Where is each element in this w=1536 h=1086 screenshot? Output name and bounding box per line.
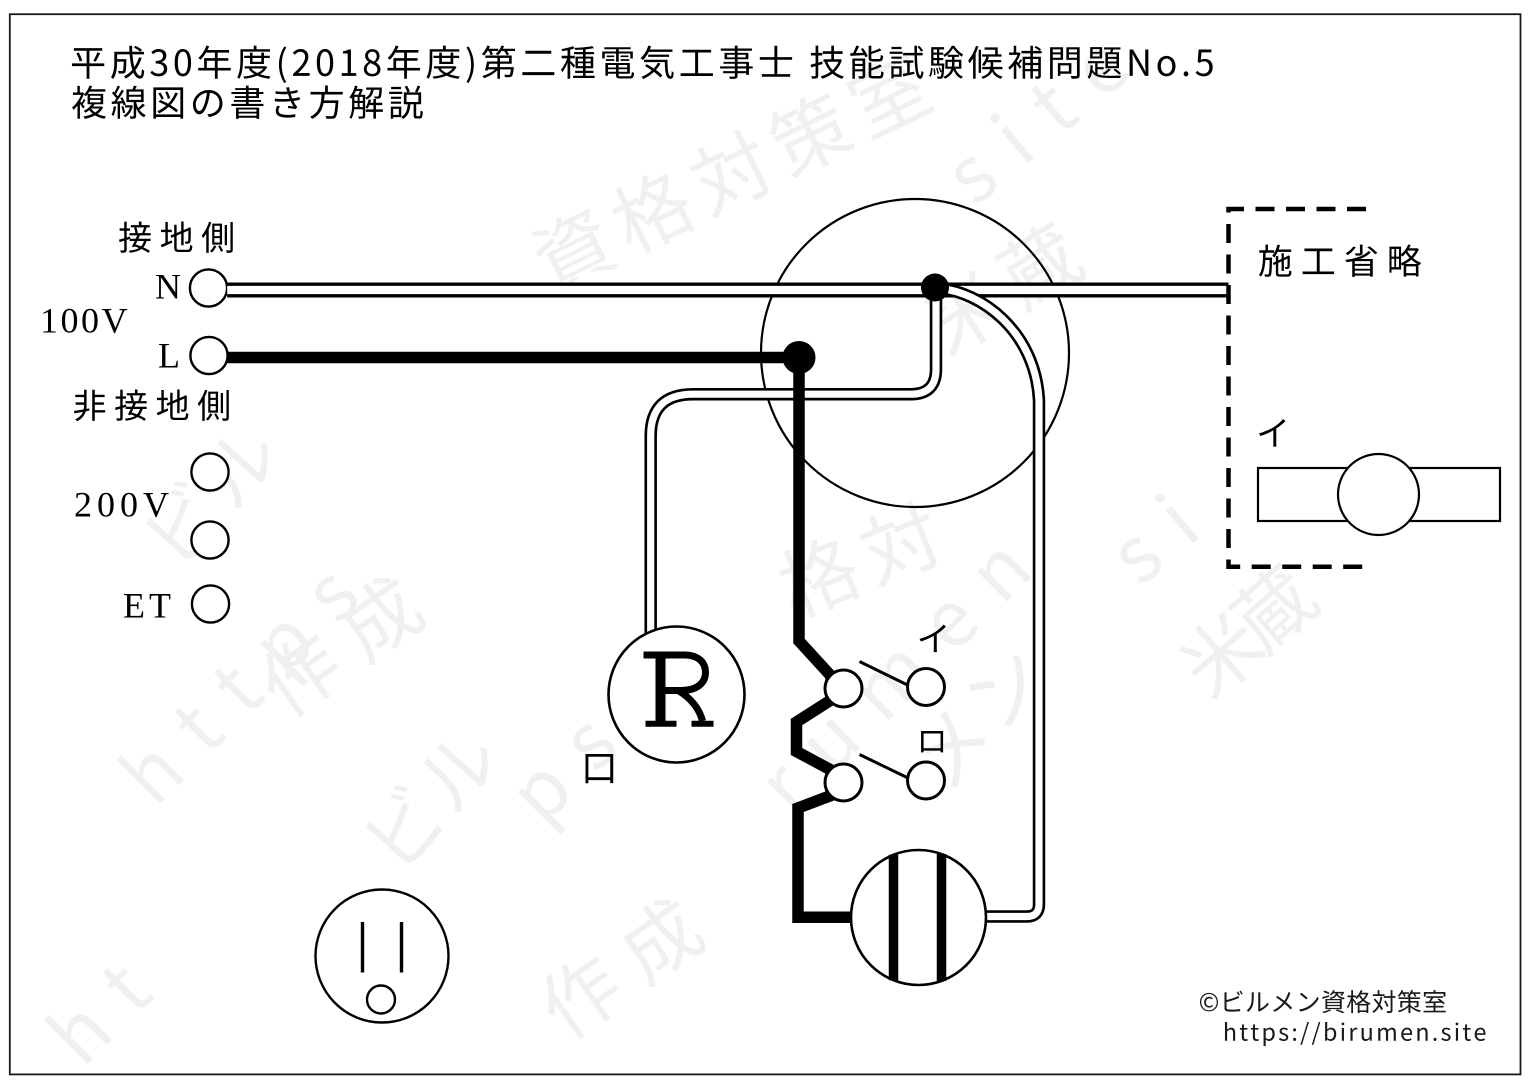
svg-text:100V: 100V <box>40 301 130 341</box>
svg-text:200V: 200V <box>74 485 174 525</box>
svg-text:L: L <box>158 336 180 376</box>
svg-text:N: N <box>155 267 181 307</box>
svg-text:ET: ET <box>123 586 175 626</box>
